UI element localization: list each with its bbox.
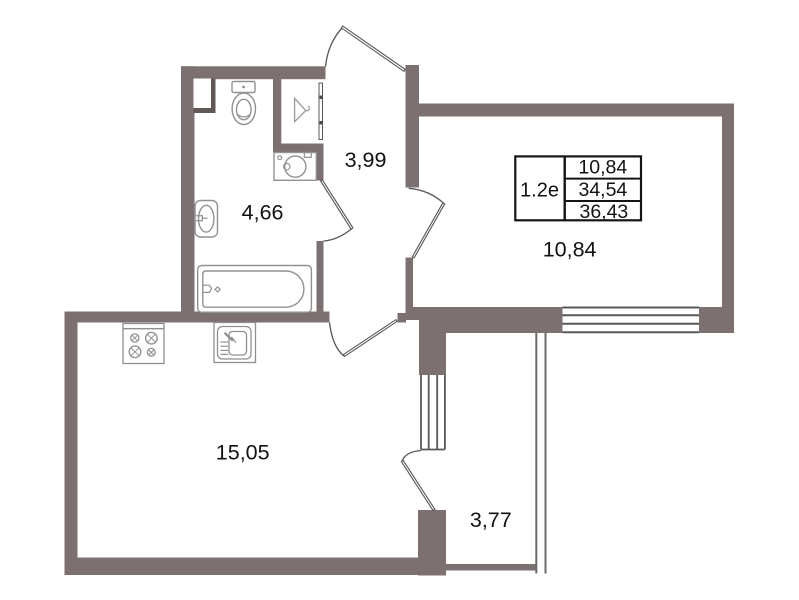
svg-text:3,99: 3,99 bbox=[345, 148, 387, 172]
svg-text:10,84: 10,84 bbox=[578, 157, 627, 179]
svg-text:36,43: 36,43 bbox=[579, 201, 628, 223]
svg-text:1.2е: 1.2е bbox=[520, 179, 559, 201]
svg-text:34,54: 34,54 bbox=[578, 179, 627, 201]
svg-text:3,77: 3,77 bbox=[470, 508, 512, 532]
svg-text:10,84: 10,84 bbox=[543, 238, 597, 262]
svg-text:15,05: 15,05 bbox=[216, 440, 270, 464]
svg-text:4,66: 4,66 bbox=[242, 201, 284, 225]
